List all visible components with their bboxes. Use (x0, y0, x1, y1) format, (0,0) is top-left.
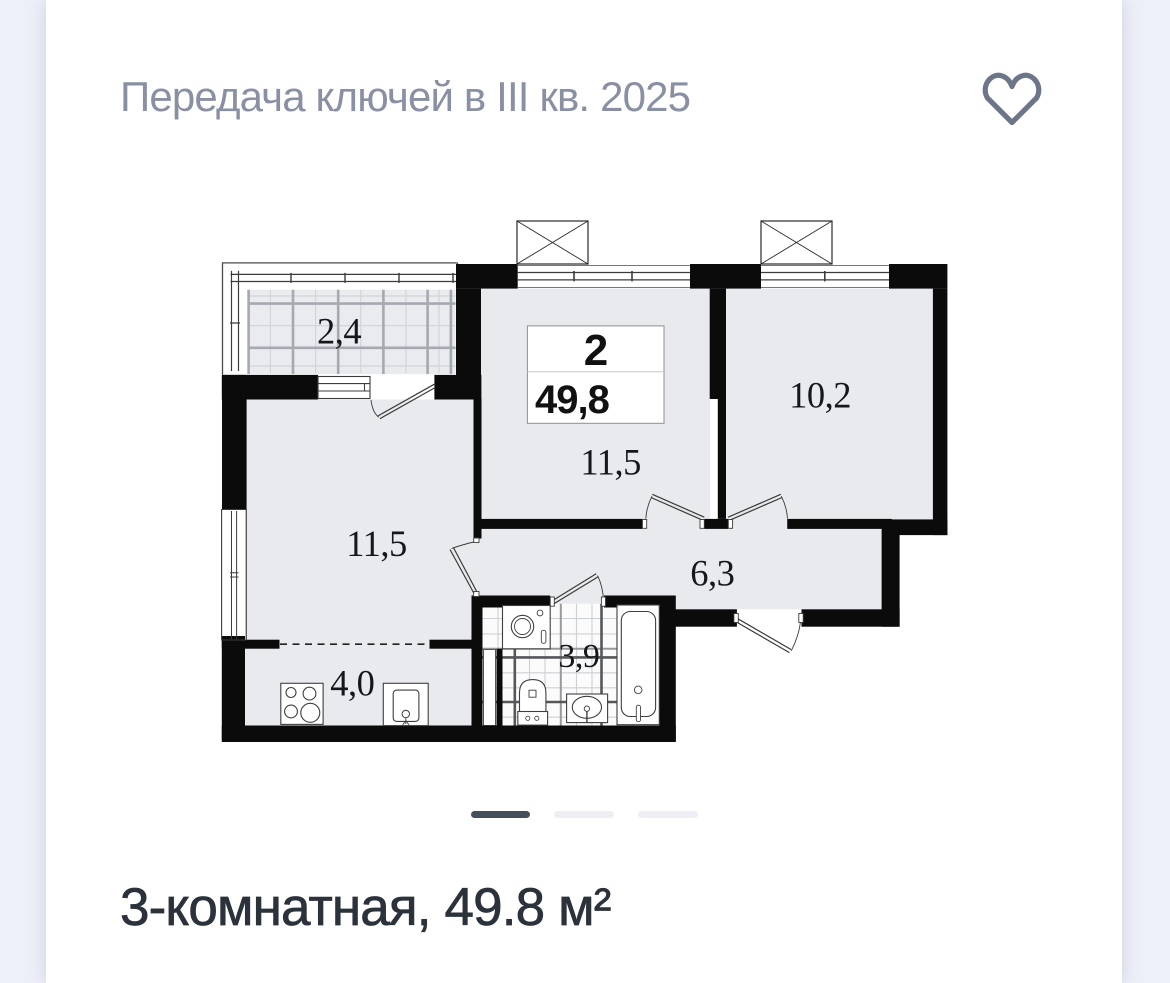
svg-text:11,5: 11,5 (346, 523, 407, 564)
svg-text:6,3: 6,3 (690, 552, 734, 593)
svg-text:3,9: 3,9 (558, 638, 599, 675)
svg-text:4,0: 4,0 (330, 662, 374, 703)
svg-text:11,5: 11,5 (580, 442, 641, 483)
svg-text:49,8: 49,8 (535, 378, 610, 422)
svg-text:2: 2 (584, 326, 608, 375)
svg-text:10,2: 10,2 (789, 374, 851, 415)
svg-text:2,4: 2,4 (317, 310, 361, 351)
